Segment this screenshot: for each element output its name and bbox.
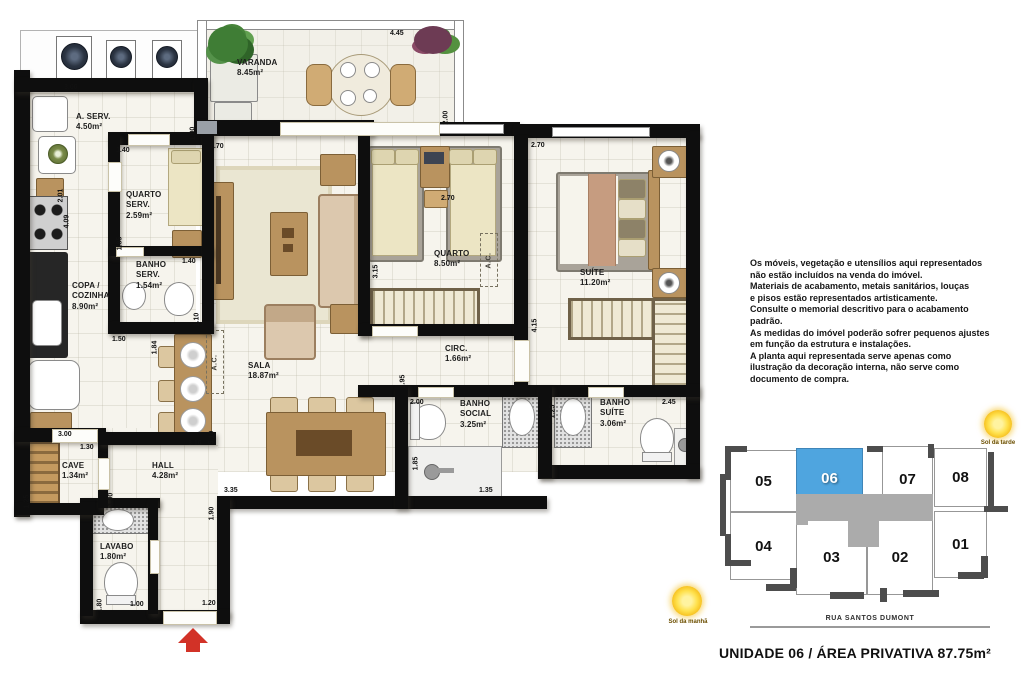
door-suite [514,340,530,382]
pillow [618,199,646,219]
room-label-lavabo: LAVABO 1.80m² [100,542,134,563]
sink [560,398,586,436]
room-label-banho-social: BANHO SOCIAL 3.25m² [460,399,491,430]
kitchen-sink [32,300,62,346]
keyplan-unit-01: 01 [934,511,987,578]
dimension-label: 2.70 [441,195,455,202]
wall [358,385,700,397]
dimension-label: 1.00 [188,120,197,146]
entrance-arrow-stem [186,643,200,652]
sink [509,398,535,436]
sun-afternoon-label: Sol da tarde [958,440,1024,446]
keyplan-core [796,494,933,521]
pillow [395,149,419,165]
dimension-label: 1.00 [106,486,115,512]
dimension-label: 3.35 [224,487,238,494]
dimension-label: 2.00 [410,399,424,406]
wall [202,132,214,332]
wall [538,465,700,479]
sun-icon [672,586,702,616]
keyplan-core [796,511,808,525]
room-label-quarto: QUARTO 8.50m² [434,249,469,270]
dimension-label: 2.70 [210,143,224,150]
room-label-hall: HALL 4.28m² [152,461,178,482]
ac-fan-icon [156,46,178,68]
door-a-serv [108,162,122,192]
plate [363,89,377,103]
fridge [28,360,80,410]
keyplan-outline-segment [958,572,984,579]
table-runner [296,430,352,456]
door-entrance [163,611,217,625]
washer-drum-icon [48,144,68,164]
varanda-chair [306,64,332,106]
ac-shaft: A.C. [206,330,224,394]
dimension-label: 4.09 [62,208,71,234]
disclaimer-line: documento de compra. [750,374,1022,386]
dimension-label: 4.15 [530,312,539,338]
keyplan-outline-segment [790,568,797,588]
keyplan-unit-08: 08 [934,448,987,507]
dimension-label: 1.80 [95,592,104,618]
toilet [164,282,194,316]
sun-morning-label: Sol da manhã [648,619,728,625]
wall [395,385,408,509]
room-label-a-serv: A. SERV. 4.50m² [76,112,111,133]
sink [102,509,134,531]
tv-screen [216,196,221,284]
dimension-label: 2.01 [56,182,65,208]
lamp-icon [658,150,680,172]
disclaimer-line: Consulte o memorial descritivo para o ac… [750,304,1022,316]
ac-fan-icon [61,43,88,70]
room-label-banho-serv: BANHO SERV. 1.54m² [136,260,166,291]
dimension-label: 1.30 [80,444,94,451]
disclaimer-line: Materiais de acabamento, metais sanitári… [750,281,1022,293]
dimension-label: 1.85 [411,450,420,476]
pillow [371,149,395,165]
dimension-label: 1.95 [398,368,407,394]
dimension-label: 1.40 [116,147,130,154]
disclaimer-line: em função da estrutura e instalações. [750,339,1022,351]
dimension-label: 1.20 [202,600,216,607]
radio [424,152,444,164]
dimension-label: 1.84 [150,334,159,360]
bar-stool [180,408,206,434]
keyplan-outline-segment [720,474,726,536]
bar-stool [180,376,206,402]
ac-label: A.C. [212,354,219,370]
disclaimer-line: não estão incluídos na venda do imóvel. [750,270,1022,282]
dimension-label: 1.90 [207,500,216,526]
doorframe-block [197,121,217,134]
plant-icon [414,26,452,54]
toilet-tank [642,452,672,462]
floorplan-page: A.C. A.C. VARANDA 8.45m²A. SERV. 4.50m²Q… [0,0,1024,674]
toilet-tank [410,402,420,440]
plate [340,90,356,106]
room-label-sala: SALA 18.87m² [248,361,279,382]
wall [14,70,30,517]
keyplan-outline-segment [988,452,994,510]
dimension-label: 2.00 [441,104,450,130]
room-label-banho-suite: BANHO SUÍTE 3.06m² [600,398,630,429]
dimension-label: 3.00 [64,84,78,91]
room-label-quarto-serv: QUARTO SERV. 2.59m² [126,190,161,221]
street-line [750,626,990,628]
page-title: UNIDADE 06 / ÁREA PRIVATIVA 87.75m² [700,645,1010,661]
sun-icon [984,410,1012,438]
disclaimer-line: e pisos estão representados artisticamen… [750,293,1022,305]
wall [217,496,230,618]
table-decor [283,244,293,252]
round-table [328,54,394,116]
varanda-chair [390,64,416,106]
laundry-tub [32,96,68,132]
dimension-label: 2.70 [531,142,545,149]
door-banho-social [418,387,454,398]
disclaimer-line: A planta aqui representada serve apenas … [750,351,1022,363]
room-label-circ: CIRC. 1.66m² [445,344,471,365]
disclaimer-line: ilustração da decoração interna, não ser… [750,362,1022,374]
wall [217,496,547,509]
table-decor [282,228,294,238]
wall [686,132,700,478]
dimension-label: 1.00 [130,601,144,608]
keyplan-unit-05: 05 [730,450,797,512]
dimension-label: 1.25 [22,488,31,514]
dining-chair [270,474,298,492]
keyplan-outline-segment [928,444,934,458]
varanda-parapet-right [454,20,464,132]
ac-fan-icon [110,46,132,68]
keyplan-core [848,521,879,547]
door-quarto [372,326,418,337]
room-label-suite: SUÍTE 11.20m² [580,268,610,289]
disclaimer-text: Os móveis, vegetação e utensílios aqui r… [750,258,1022,386]
ac-label: A.C. [486,252,493,268]
disclaimer-line: Os móveis, vegetação e utensílios aqui r… [750,258,1022,270]
disclaimer-line: padrão. [750,316,1022,328]
dimension-label: 1.85 [115,230,124,256]
dimension-label: 3.00 [58,431,72,438]
pillow [618,219,646,239]
keyplan-outline-segment [903,590,939,597]
keyplan-outline-segment [984,506,1008,512]
door-banho-suite [588,387,624,398]
pillow [618,179,646,199]
room-label-cave: CAVE 1.34m² [62,461,88,482]
disclaimer-line: As medidas do imóvel poderão sofrer pequ… [750,328,1022,340]
room-label-copa-cozinha: COPA / COZINHA 8.90m² [72,281,110,312]
side-table [320,154,356,186]
pillow [449,149,473,165]
door-lavabo [150,540,160,574]
keyplan-outline-segment [867,446,883,452]
plant-icon [208,26,248,62]
dimension-label: 3.10 [188,440,202,447]
shower-arm [438,468,454,473]
dimension-label: 3.15 [371,258,380,284]
dimension-label: 1.10 [192,306,201,332]
pillow [171,150,201,164]
wall [14,78,204,92]
window-suite [552,127,650,137]
dimension-label: 1.40 [182,258,196,265]
room-label-varanda: VARANDA 8.45m² [237,58,277,79]
keyplan-outline-segment [725,560,751,566]
armchair [264,304,316,360]
dimension-label: 1.25 [548,398,557,424]
entrance-arrow-icon [178,628,208,643]
wardrobe [370,288,480,328]
mattress [372,164,418,256]
dining-chair [346,474,374,492]
lamp-icon [658,272,680,294]
street-label: RUA SANTOS DUMONT [750,615,990,622]
pillow [618,239,646,257]
dimension-label: 1.35 [479,487,493,494]
keyplan-outline-segment [880,588,887,602]
keyplan-unit-04: 04 [730,512,797,580]
keyplan-outline-segment [830,592,864,599]
ac-shaft: A.C. [480,233,498,287]
bar-stool [180,342,206,368]
dimension-label: 4.45 [390,30,404,37]
headboard [648,170,660,270]
blanket [588,174,616,266]
dimension-label: 1.50 [112,336,126,343]
dimension-label: 5.10 [207,424,216,450]
wall [358,136,370,336]
door-varanda [280,122,440,136]
wall [80,498,93,616]
plate [364,62,380,78]
plate [340,62,356,78]
pillow [473,149,497,165]
dining-chair [308,474,336,492]
dimension-label: 2.45 [662,399,676,406]
door-quarto-serv [128,134,170,146]
